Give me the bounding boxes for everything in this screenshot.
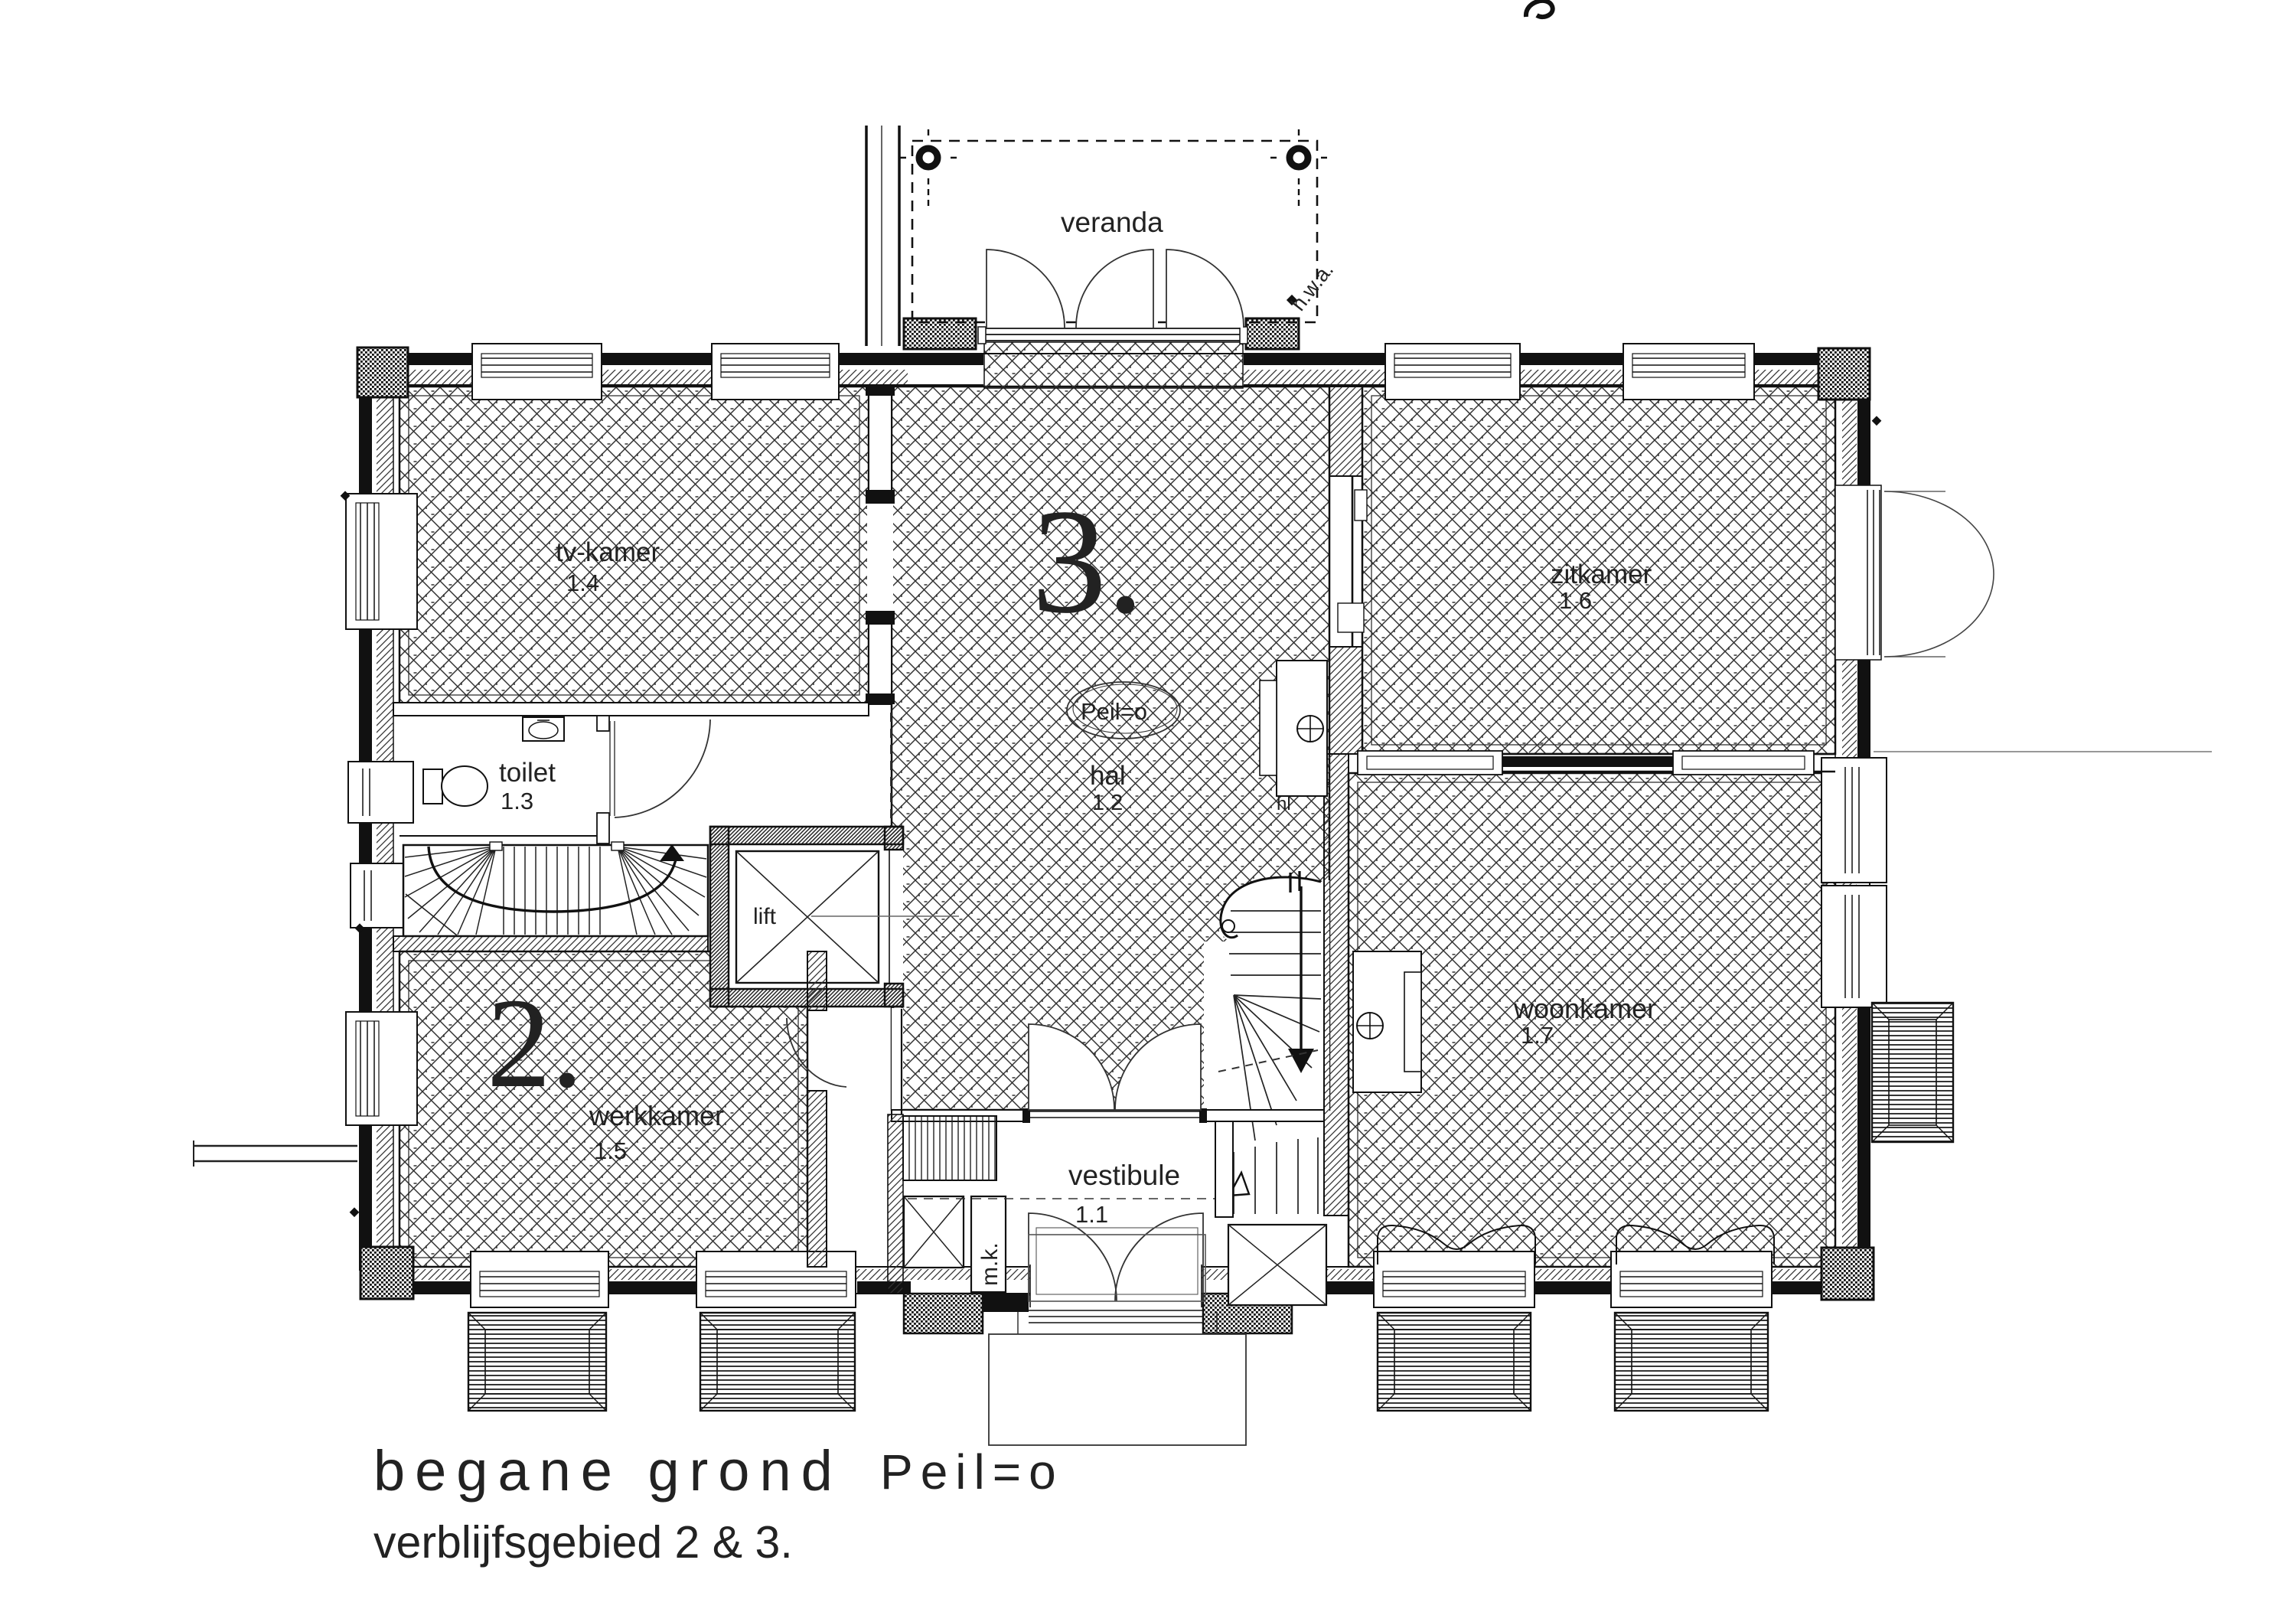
svg-text:2.: 2. <box>487 972 583 1114</box>
svg-text:1.4: 1.4 <box>566 569 599 596</box>
svg-text:Peil=o: Peil=o <box>880 1444 1064 1499</box>
svg-text:werkkamer: werkkamer <box>589 1100 724 1131</box>
svg-text:1.2: 1.2 <box>1092 791 1123 815</box>
svg-text:vestibule: vestibule <box>1068 1160 1180 1191</box>
svg-text:1.5: 1.5 <box>594 1137 627 1164</box>
svg-text:hal: hal <box>1090 761 1126 791</box>
svg-text:zitkamer: zitkamer <box>1551 560 1652 589</box>
svg-text:woonkamer: woonkamer <box>1513 993 1656 1024</box>
svg-text:3.: 3. <box>1032 478 1144 644</box>
svg-text:1.1: 1.1 <box>1075 1201 1108 1228</box>
svg-text:m.k.: m.k. <box>977 1242 1003 1286</box>
svg-text:veranda: veranda <box>1061 207 1163 238</box>
svg-text:verblijfsgebied 2 & 3.: verblijfsgebied 2 & 3. <box>373 1517 793 1568</box>
svg-text:1.3: 1.3 <box>501 788 533 814</box>
svg-text:begane grond: begane grond <box>373 1439 843 1503</box>
svg-text:toilet: toilet <box>499 758 556 788</box>
svg-text:1.6: 1.6 <box>1559 587 1592 614</box>
svg-text:Peil=o: Peil=o <box>1081 698 1147 725</box>
svg-text:tv-kamer: tv-kamer <box>556 537 660 567</box>
svg-text:lift: lift <box>753 904 777 929</box>
svg-text:1.7: 1.7 <box>1521 1022 1554 1049</box>
svg-text:hl: hl <box>1277 794 1291 814</box>
